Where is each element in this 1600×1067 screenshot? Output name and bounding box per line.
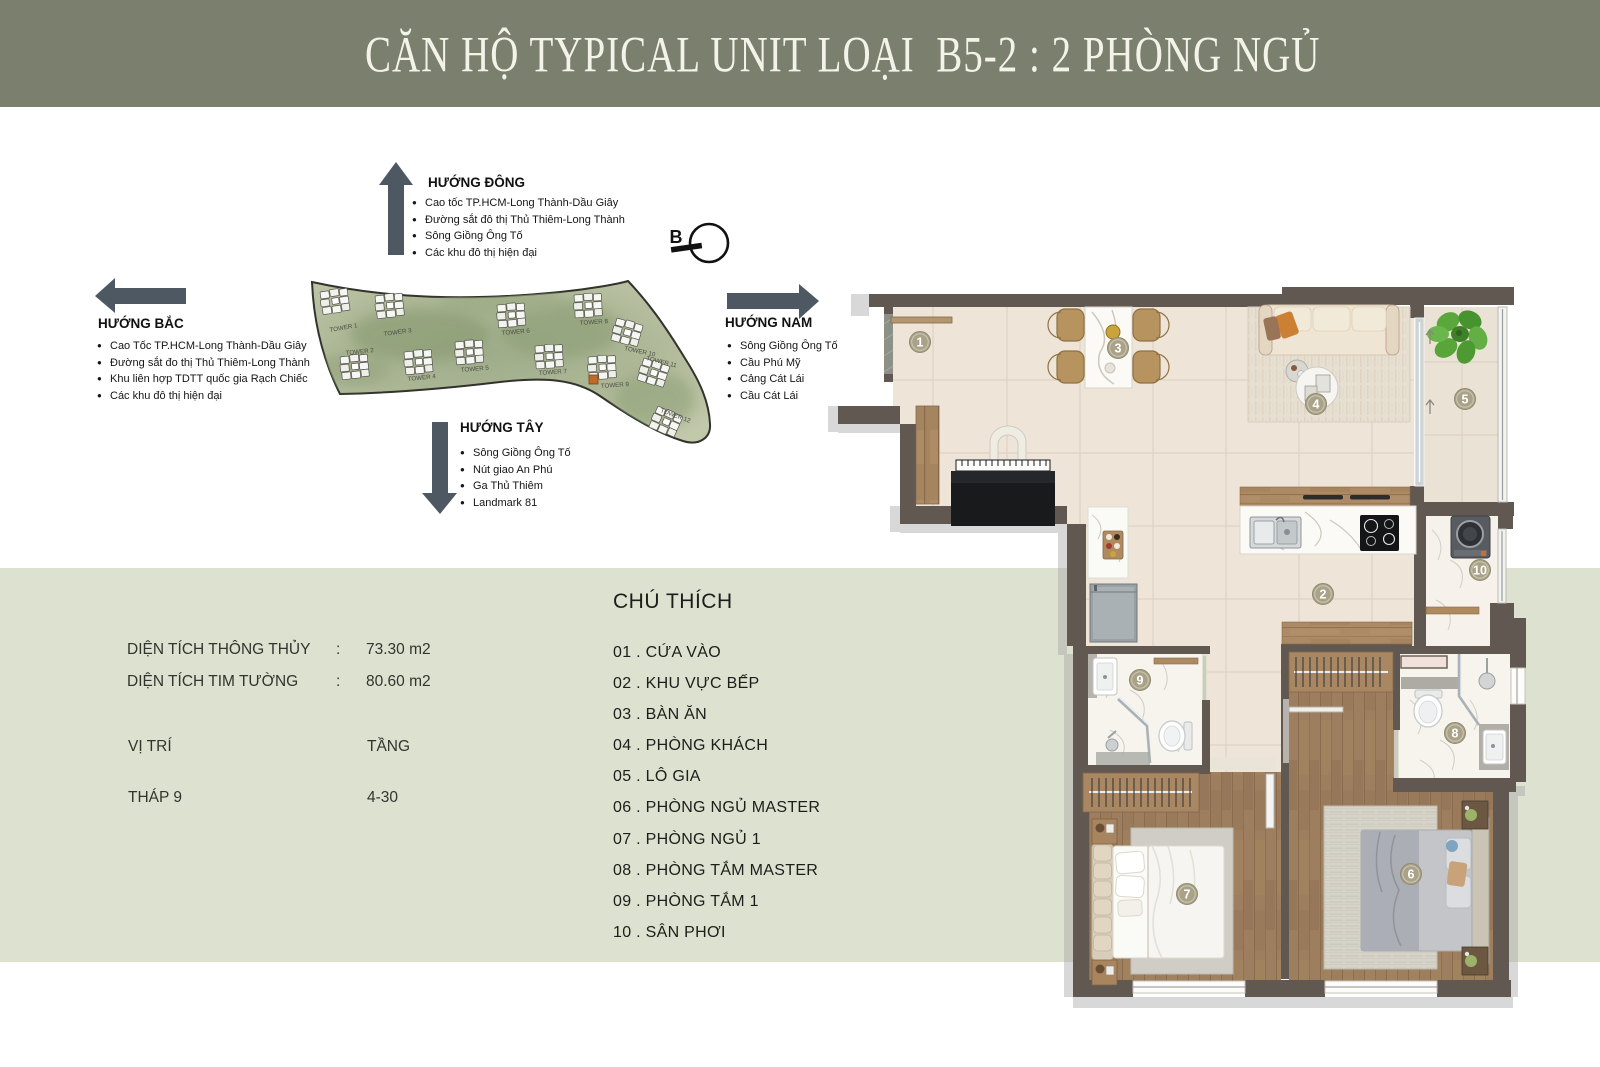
svg-text:2: 2 xyxy=(1320,588,1327,602)
svg-text:4: 4 xyxy=(1313,398,1320,412)
svg-text:10: 10 xyxy=(1473,564,1487,578)
svg-text:B: B xyxy=(670,227,683,247)
svg-text:5: 5 xyxy=(1462,393,1469,407)
svg-text:7: 7 xyxy=(1184,888,1191,902)
svg-text:3: 3 xyxy=(1115,342,1122,356)
svg-text:8: 8 xyxy=(1452,727,1459,741)
svg-text:6: 6 xyxy=(1408,868,1415,882)
svg-text:1: 1 xyxy=(917,336,924,350)
svg-text:9: 9 xyxy=(1137,674,1144,688)
